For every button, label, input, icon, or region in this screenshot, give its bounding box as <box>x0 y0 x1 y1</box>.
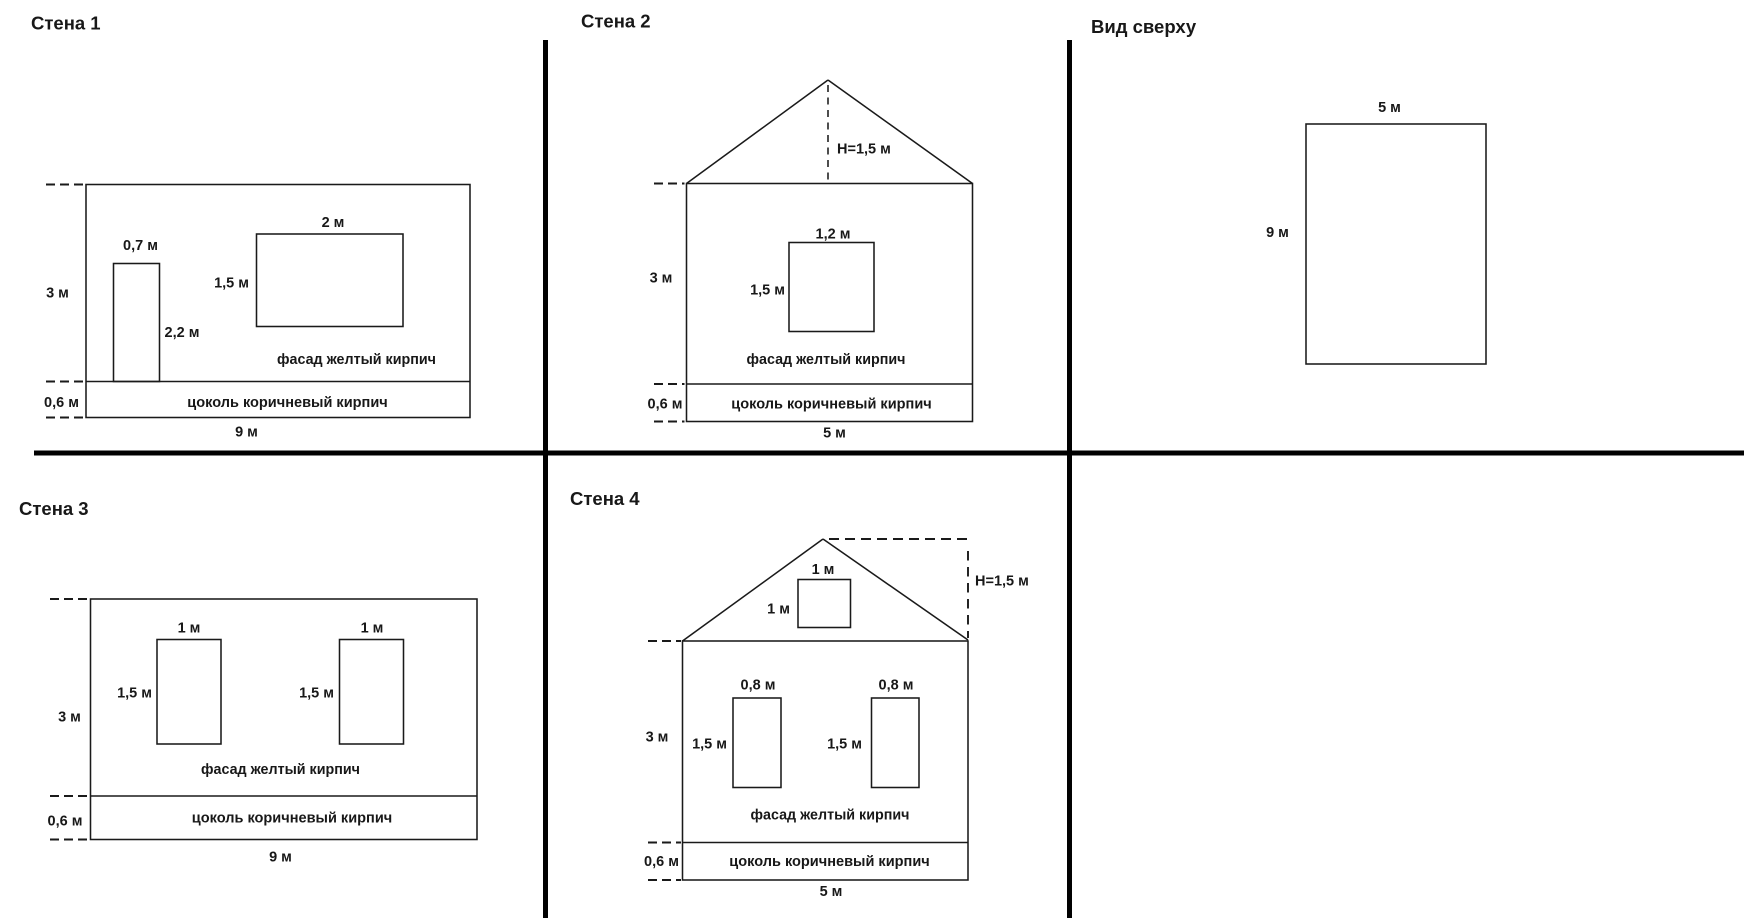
svg-text:0,6 м: 0,6 м <box>44 395 79 411</box>
svg-text:Н=1,5 м: Н=1,5 м <box>975 574 1029 590</box>
svg-text:0,8 м: 0,8 м <box>741 678 776 694</box>
svg-text:1 м: 1 м <box>361 621 384 637</box>
svg-text:9 м: 9 м <box>235 425 258 441</box>
svg-text:фасад желтый кирпич: фасад желтый кирпич <box>751 808 910 824</box>
svg-text:5 м: 5 м <box>820 884 843 900</box>
svg-text:цоколь коричневый кирпич: цоколь коричневый кирпич <box>187 395 387 411</box>
svg-text:9 м: 9 м <box>269 850 292 866</box>
svg-text:фасад желтый кирпич: фасад желтый кирпич <box>201 762 360 778</box>
svg-text:фасад желтый кирпич: фасад желтый кирпич <box>747 352 906 368</box>
svg-text:1 м: 1 м <box>812 562 835 578</box>
svg-text:1,2 м: 1,2 м <box>816 227 851 243</box>
svg-text:3 м: 3 м <box>46 286 69 302</box>
svg-text:1 м: 1 м <box>767 602 790 618</box>
svg-text:0,8 м: 0,8 м <box>879 678 914 694</box>
svg-text:0,6 м: 0,6 м <box>648 397 683 413</box>
svg-text:фасад желтый кирпич: фасад желтый кирпич <box>277 352 436 368</box>
svg-text:5 м: 5 м <box>1378 100 1401 116</box>
svg-text:2 м: 2 м <box>322 215 345 231</box>
svg-text:2,2 м: 2,2 м <box>165 325 200 341</box>
svg-text:Стена 1: Стена 1 <box>31 13 101 34</box>
svg-text:Стена 3: Стена 3 <box>19 498 89 519</box>
svg-text:цоколь коричневый кирпич: цоколь коричневый кирпич <box>729 854 929 870</box>
svg-text:Вид сверху: Вид сверху <box>1091 16 1197 37</box>
svg-text:1,5 м: 1,5 м <box>299 686 334 702</box>
svg-text:Стена 4: Стена 4 <box>570 488 640 509</box>
svg-text:Н=1,5 м: Н=1,5 м <box>837 142 891 158</box>
svg-text:3 м: 3 м <box>646 730 669 746</box>
svg-text:1,5 м: 1,5 м <box>117 686 152 702</box>
svg-text:0,6 м: 0,6 м <box>48 814 83 830</box>
svg-text:Стена 2: Стена 2 <box>581 11 651 32</box>
svg-text:0,7 м: 0,7 м <box>123 238 158 254</box>
svg-text:5 м: 5 м <box>823 426 846 442</box>
svg-text:1 м: 1 м <box>178 621 201 637</box>
svg-text:3 м: 3 м <box>650 271 673 287</box>
svg-text:3 м: 3 м <box>58 710 81 726</box>
svg-text:1,5 м: 1,5 м <box>214 276 249 292</box>
svg-text:1,5 м: 1,5 м <box>827 737 862 753</box>
svg-text:0,6 м: 0,6 м <box>644 854 679 870</box>
svg-text:1,5 м: 1,5 м <box>750 283 785 299</box>
svg-text:цоколь коричневый кирпич: цоколь коричневый кирпич <box>731 397 931 413</box>
svg-text:цоколь коричневый кирпич: цоколь коричневый кирпич <box>192 811 392 827</box>
svg-text:9 м: 9 м <box>1266 225 1289 241</box>
svg-text:1,5 м: 1,5 м <box>692 737 727 753</box>
